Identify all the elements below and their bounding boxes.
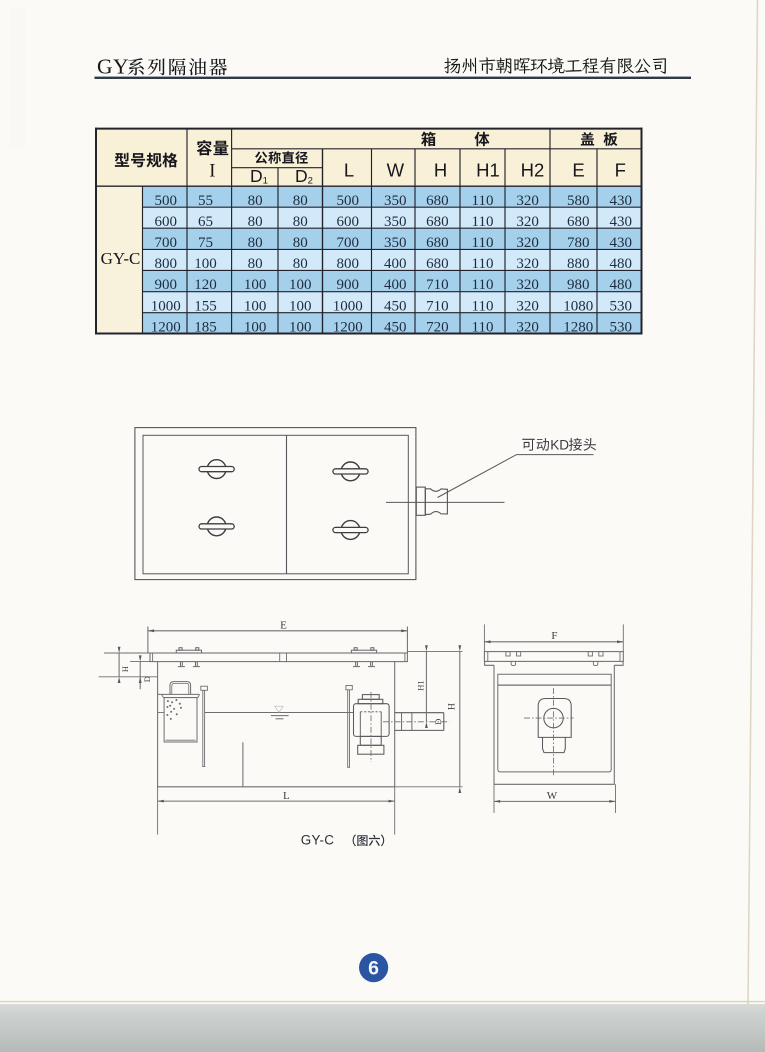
svg-text:710: 710 xyxy=(426,277,449,293)
svg-text:155: 155 xyxy=(194,298,217,314)
svg-text:700: 700 xyxy=(154,235,177,251)
svg-text:580: 580 xyxy=(567,193,590,209)
svg-text:1200: 1200 xyxy=(333,319,363,335)
svg-text:W: W xyxy=(547,790,558,802)
svg-text:430: 430 xyxy=(609,193,632,209)
svg-text:185: 185 xyxy=(194,319,217,335)
svg-text:680: 680 xyxy=(567,214,590,230)
svg-text:880: 880 xyxy=(567,256,590,272)
svg-text:D: D xyxy=(433,719,443,725)
svg-text:I: I xyxy=(209,161,215,181)
svg-text:H1: H1 xyxy=(415,680,425,690)
svg-text:100: 100 xyxy=(244,298,267,314)
svg-text:600: 600 xyxy=(154,214,177,230)
svg-text:1200: 1200 xyxy=(151,319,181,335)
svg-text:100: 100 xyxy=(244,277,267,293)
svg-text:900: 900 xyxy=(337,277,360,293)
svg-text:900: 900 xyxy=(154,277,177,293)
svg-text:480: 480 xyxy=(609,277,632,293)
svg-text:980: 980 xyxy=(567,277,590,293)
svg-text:H1: H1 xyxy=(476,159,500,180)
svg-text:80: 80 xyxy=(248,193,263,209)
svg-text:75: 75 xyxy=(198,235,213,251)
svg-text:400: 400 xyxy=(384,277,407,293)
svg-text:430: 430 xyxy=(609,214,632,230)
svg-text:800: 800 xyxy=(337,256,360,272)
svg-text:100: 100 xyxy=(289,298,312,314)
svg-text:320: 320 xyxy=(516,214,539,230)
svg-text:350: 350 xyxy=(384,193,407,209)
svg-text:530: 530 xyxy=(609,298,632,314)
svg-text:120: 120 xyxy=(194,277,217,293)
svg-text:100: 100 xyxy=(244,319,267,335)
svg-text:GY-C: GY-C xyxy=(101,249,141,268)
svg-text:65: 65 xyxy=(198,214,213,230)
svg-text:800: 800 xyxy=(154,256,177,272)
svg-text:H: H xyxy=(448,703,458,710)
svg-text:80: 80 xyxy=(293,193,308,209)
svg-text:80: 80 xyxy=(293,235,308,251)
svg-text:110: 110 xyxy=(472,235,494,251)
svg-text:110: 110 xyxy=(472,193,494,209)
svg-text:1280: 1280 xyxy=(563,319,593,335)
svg-text:430: 430 xyxy=(609,235,632,251)
svg-text:E: E xyxy=(280,620,287,632)
svg-text:530: 530 xyxy=(609,319,632,335)
svg-text:710: 710 xyxy=(426,298,449,314)
svg-text:KD: KD xyxy=(550,438,569,453)
svg-text:110: 110 xyxy=(472,319,494,335)
svg-text:L: L xyxy=(283,790,290,802)
svg-text:680: 680 xyxy=(426,193,449,209)
svg-text:780: 780 xyxy=(567,235,590,251)
svg-text:1000: 1000 xyxy=(333,298,363,314)
svg-text:H: H xyxy=(434,159,447,180)
svg-text:100: 100 xyxy=(289,319,312,335)
svg-text:1000: 1000 xyxy=(151,298,181,314)
svg-text:500: 500 xyxy=(154,193,177,209)
svg-text:700: 700 xyxy=(337,235,360,251)
svg-text:H: H xyxy=(120,666,130,672)
svg-text:680: 680 xyxy=(426,214,449,230)
svg-text:680: 680 xyxy=(426,235,449,251)
svg-text:500: 500 xyxy=(337,193,360,209)
svg-text:320: 320 xyxy=(516,256,539,272)
svg-text:80: 80 xyxy=(248,235,263,251)
svg-text:55: 55 xyxy=(198,193,213,209)
svg-text:100: 100 xyxy=(289,277,312,293)
svg-text:600: 600 xyxy=(337,214,360,230)
svg-text:1080: 1080 xyxy=(563,298,593,314)
svg-text:720: 720 xyxy=(426,319,449,335)
svg-text:GY: GY xyxy=(97,55,129,79)
svg-text:110: 110 xyxy=(472,277,494,293)
svg-text:400: 400 xyxy=(384,256,407,272)
svg-text:80: 80 xyxy=(293,256,308,272)
svg-text:D: D xyxy=(142,676,152,682)
svg-text:W: W xyxy=(387,159,405,180)
svg-text:350: 350 xyxy=(384,235,407,251)
svg-text:110: 110 xyxy=(472,298,494,314)
svg-text:110: 110 xyxy=(472,256,494,272)
svg-text:320: 320 xyxy=(516,298,539,314)
svg-text:450: 450 xyxy=(384,319,407,335)
svg-text:450: 450 xyxy=(384,298,407,314)
svg-text:320: 320 xyxy=(516,319,539,335)
svg-text:100: 100 xyxy=(194,256,217,272)
svg-text:110: 110 xyxy=(472,214,494,230)
svg-text:6: 6 xyxy=(368,958,379,980)
svg-text:E: E xyxy=(572,159,584,180)
svg-text:80: 80 xyxy=(248,256,263,272)
svg-text:L: L xyxy=(344,159,354,180)
svg-text:320: 320 xyxy=(516,277,539,293)
svg-text:GY-C: GY-C xyxy=(301,832,334,847)
svg-text:320: 320 xyxy=(516,193,539,209)
svg-text:350: 350 xyxy=(384,214,407,230)
svg-text:480: 480 xyxy=(609,256,632,272)
svg-text:H2: H2 xyxy=(521,159,545,180)
svg-text:F: F xyxy=(615,159,626,180)
svg-text:320: 320 xyxy=(516,235,539,251)
svg-text:80: 80 xyxy=(248,214,263,230)
svg-text:680: 680 xyxy=(426,256,449,272)
svg-text:F: F xyxy=(551,630,557,642)
svg-text:80: 80 xyxy=(293,214,308,230)
